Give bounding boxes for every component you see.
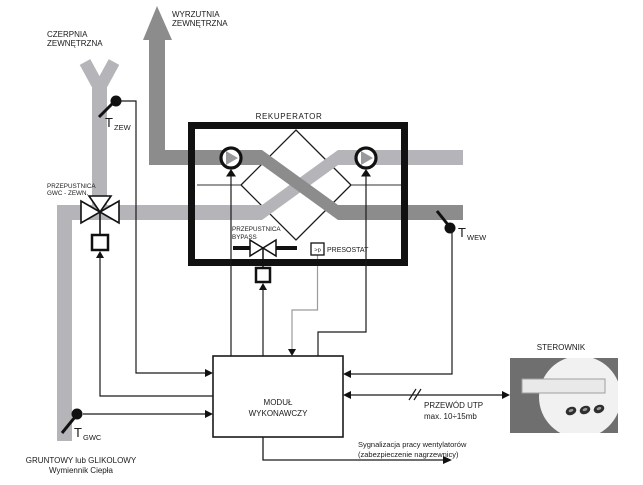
module-label-line2: WYKONAWCZY — [249, 409, 308, 418]
t-gwc-sensor-icon — [62, 409, 213, 434]
signal-label-line2: (zabezpieczenie nagrzewnicy) — [358, 450, 459, 459]
controller-label: STEROWNIK — [537, 343, 586, 352]
recuperator-label: REKUPERATOR — [256, 112, 323, 121]
utp-label-line1: PRZEWÓD UTP — [424, 401, 483, 410]
exhaust-label-line1: WYRZUTNIA — [172, 10, 220, 19]
ground-exchanger-label-line2: Wymiennik Ciepła — [49, 466, 114, 475]
pressure-switch-symbol: >p — [314, 248, 321, 254]
exhaust-label-line2: ZEWNĘTRZNA — [172, 19, 228, 28]
controller-device — [510, 356, 621, 438]
pressure-switch-label: PRESOSTAT — [327, 247, 369, 254]
intake-label-line1: CZERPNIA — [47, 30, 88, 39]
utp-line — [343, 389, 510, 400]
gwc-duct — [57, 205, 197, 441]
bypass-actuator — [256, 268, 270, 356]
hvac-recuperation-diagram: REKUPERATOR PRZEPUSTNICA BYPASS >p PRESO… — [0, 0, 643, 485]
signal-label-line1: Sygnalizacja pracy wentylatorów — [358, 440, 467, 449]
pressure-switch-wire — [292, 255, 318, 350]
utp-label-line2: max. 10÷15mb — [424, 412, 477, 421]
intake-y-duct — [85, 62, 114, 213]
t-wew-label: TWEW — [458, 225, 487, 242]
ground-exchanger-label-line1: GRUNTOWY lub GLIKOLOWY — [26, 456, 137, 465]
module-label-line1: MODUŁ — [264, 398, 293, 407]
bypass-damper-label-line1: PRZEPUSTNICA — [232, 226, 281, 233]
module-box: MODUŁ WYKONAWCZY — [213, 356, 343, 437]
t-gwc-label: TGWC — [74, 425, 102, 442]
t-wew-sensor-icon — [343, 211, 456, 378]
gwc-valve-icon — [81, 196, 119, 236]
gwc-damper-label-line1: PRZEPUSTNICA — [47, 183, 96, 190]
bypass-damper-label-line2: BYPASS — [232, 234, 257, 241]
gwc-damper-label-line2: GWC - ZEWN. — [47, 190, 89, 197]
fan-left-icon — [221, 148, 241, 356]
t-zew-label: TZEW — [105, 115, 132, 132]
controller-display — [522, 379, 605, 393]
intake-label-line2: ZEWNĘTRZNA — [47, 39, 103, 48]
